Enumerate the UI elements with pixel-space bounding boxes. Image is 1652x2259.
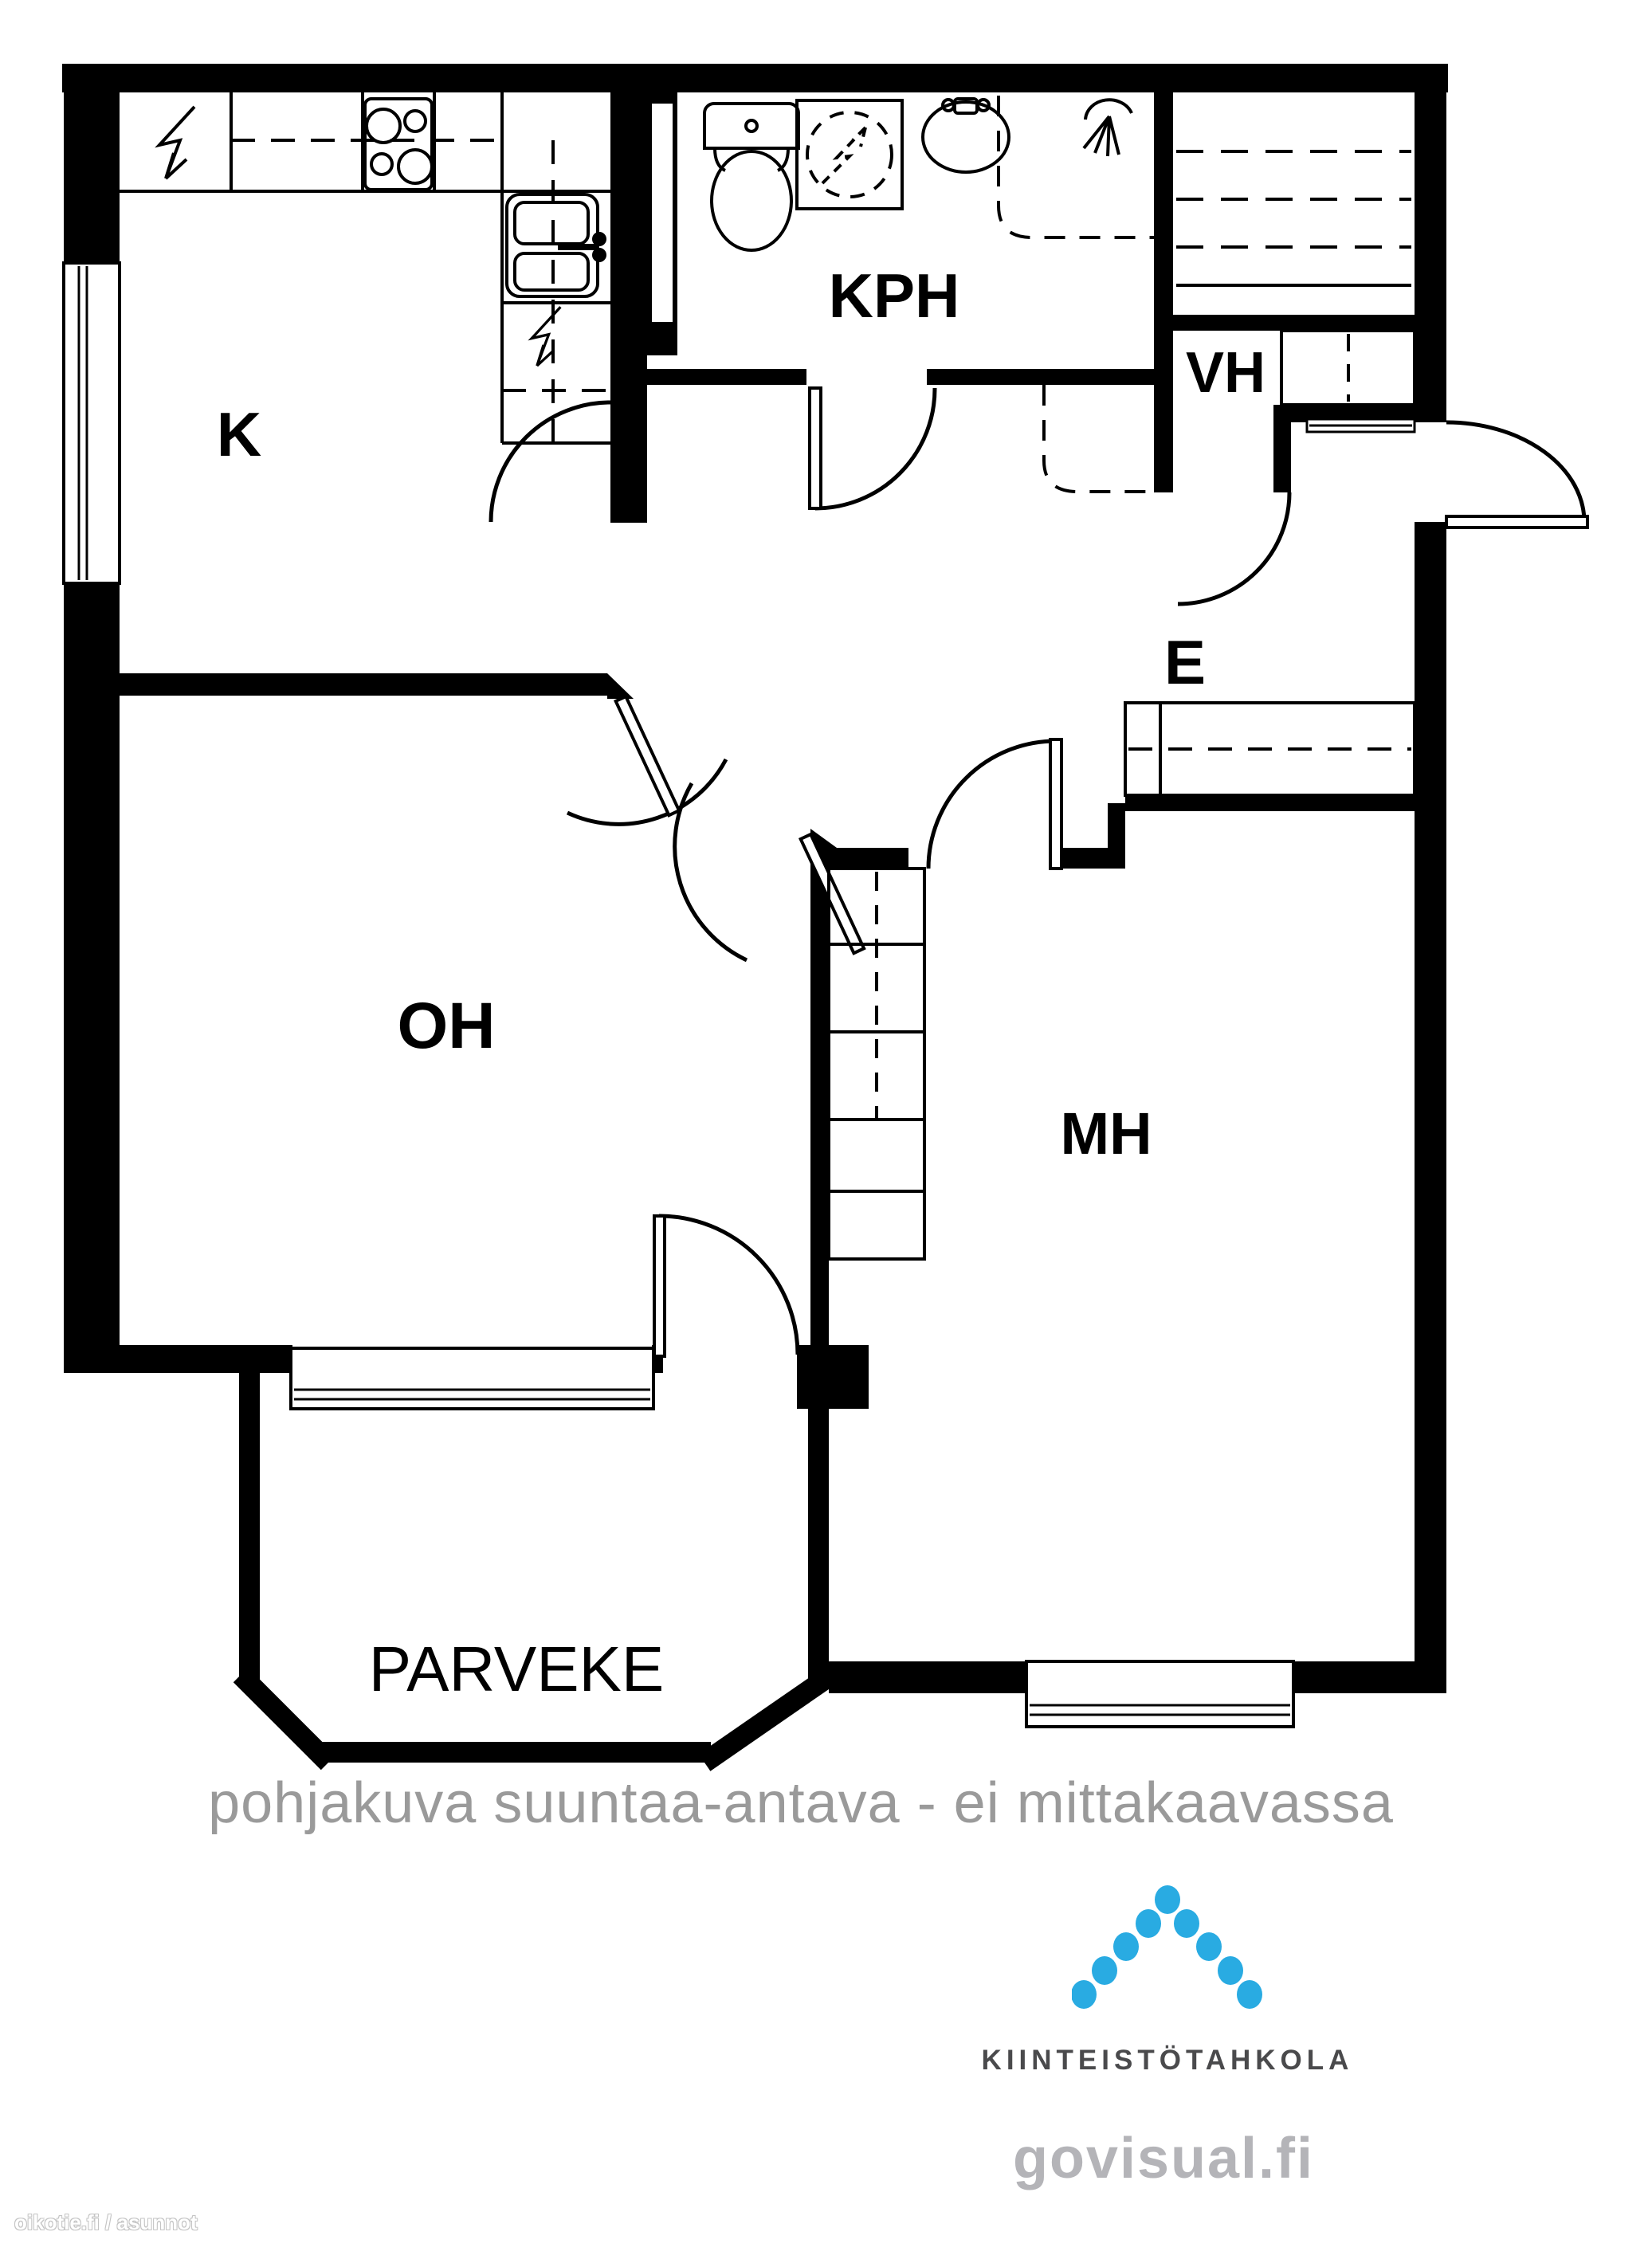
floor-plan: K KPH VH E OH MH PARVEKE xyxy=(0,0,1652,2259)
toilet-icon xyxy=(704,104,799,250)
bathroom-fixtures xyxy=(704,96,1154,250)
wall-k-oh xyxy=(109,673,607,696)
door-closet xyxy=(1178,492,1289,604)
watermark-text: oikotie.fi / asunnot xyxy=(14,2210,198,2235)
wall-mh-top-right xyxy=(1060,848,1125,869)
wall-oh-mh xyxy=(810,869,829,1373)
room-label-closet: VH xyxy=(1186,341,1265,405)
wall-kph-bottom-right xyxy=(927,369,1154,385)
window-living-room xyxy=(291,1348,653,1409)
wall-jamb-k-oh xyxy=(607,673,634,699)
bathroom-sink-icon xyxy=(923,99,1009,172)
wall-balcony-right xyxy=(808,1406,829,1681)
room-label-bedroom: MH xyxy=(1060,1100,1152,1167)
wall-balcony-left xyxy=(239,1373,260,1684)
window-kitchen xyxy=(64,263,120,583)
room-label-bathroom: KPH xyxy=(829,261,960,331)
electrical-icon-2 xyxy=(532,307,560,366)
stove-icon xyxy=(365,99,432,190)
wall-left-upper xyxy=(64,64,120,263)
door-bathroom xyxy=(810,388,935,508)
room-label-entry: E xyxy=(1164,627,1206,697)
window-bedroom xyxy=(1026,1661,1293,1727)
door-entrance xyxy=(1446,422,1587,527)
entry-closet xyxy=(1125,703,1415,795)
entrance-threshold xyxy=(1307,419,1415,432)
wall-balcony-chamfer-right xyxy=(704,1673,834,1763)
door-balcony xyxy=(654,1216,798,1356)
wall-mh-bottom-left xyxy=(829,1661,1026,1693)
wall-e-mh xyxy=(1125,795,1415,811)
wall-right-upper xyxy=(1415,92,1446,422)
windows xyxy=(64,263,1415,1727)
room-label-balcony: PARVEKE xyxy=(369,1633,665,1704)
wall-k-kph xyxy=(610,92,647,523)
logo-chevron-icon xyxy=(1072,1881,1263,2016)
wall-top xyxy=(62,64,1448,92)
duct-shaft xyxy=(652,104,673,322)
disclaimer-caption: pohjakuva suuntaa-antava - ei mittakaava… xyxy=(208,1771,1394,1836)
shower-icon xyxy=(1084,100,1132,156)
room-label-kitchen: K xyxy=(217,399,261,469)
wall-mh-bottom-right xyxy=(1293,1661,1446,1693)
door-bedroom xyxy=(928,739,1061,869)
wall-balcony-chamfer-left xyxy=(241,1675,328,1763)
wall-oh-mh-corner xyxy=(797,1345,869,1409)
room-label-living-room: OH xyxy=(398,990,496,1062)
wall-vh-step xyxy=(1273,405,1291,492)
wall-vh-left xyxy=(1154,92,1173,492)
website-name: govisual.fi xyxy=(1013,2126,1314,2191)
electrical-icon xyxy=(159,107,194,178)
walls xyxy=(62,64,1448,1763)
door-living-room xyxy=(675,783,864,960)
shower-enclosure-dashed xyxy=(999,96,1154,237)
kitchen-fixtures xyxy=(120,92,610,443)
washing-machine-icon xyxy=(797,100,902,209)
company-name: KIINTEISTÖTAHKOLA xyxy=(982,2045,1354,2077)
door-kitchen xyxy=(491,402,610,522)
wall-oh-bottom-left xyxy=(64,1345,292,1373)
kitchen-sink-icon xyxy=(507,194,605,296)
door-living-room-west xyxy=(567,696,726,824)
wall-kph-bottom-left xyxy=(647,369,806,385)
wall-vh-divider xyxy=(1173,315,1415,331)
wall-right-lower xyxy=(1415,522,1446,1693)
coat-rack-dashed xyxy=(1044,385,1154,492)
wall-balcony-bottom xyxy=(317,1742,711,1763)
wall-left-lower xyxy=(64,583,120,1373)
